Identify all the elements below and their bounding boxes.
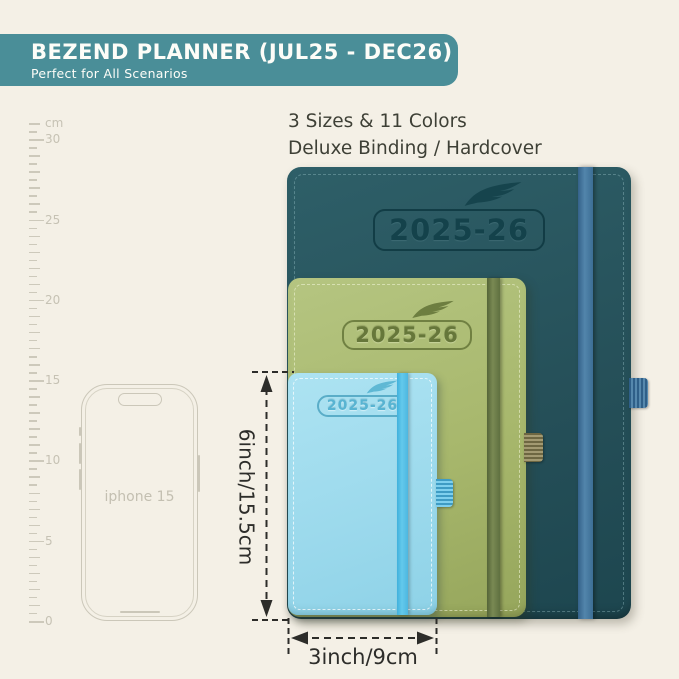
ruler-tick [29,501,37,503]
ruler-tick [29,316,40,318]
ruler-tick [29,228,37,230]
height-dimension-label: 6inch/15.5cm [235,410,259,585]
ruler-tick [29,525,40,527]
ruler-tick [29,468,37,470]
planner-small-pen-loop [436,479,453,507]
ruler-tick [29,493,40,495]
ruler-number-label: 5 [45,534,53,548]
ruler-tick [29,147,37,149]
iphone-mute-button [79,427,81,436]
ruler-tick [29,332,40,334]
ruler-tick [29,284,40,286]
iphone-power-button [198,455,200,492]
ruler-tick [29,621,44,623]
planner-medium-pen-loop [524,433,543,462]
header-banner: BEZEND PLANNER (JUL25 - DEC26) Perfect f… [0,34,458,86]
ruler-tick [29,340,37,342]
ruler-tick [29,131,37,133]
ruler-tick [29,276,37,278]
header-title: BEZEND PLANNER (JUL25 - DEC26) [31,40,458,64]
info-line-binding: Deluxe Binding / Hardcover [288,135,542,162]
ruler-tick [29,436,37,438]
product-info: 3 Sizes & 11 Colors Deluxe Binding / Har… [288,108,542,162]
dynamic-island [118,393,162,406]
ruler-tick [29,573,40,575]
ruler-tick [29,605,40,607]
header-subtitle: Perfect for All Scenarios [31,66,458,81]
year-label: 2025-26 [373,209,545,251]
ruler-tick [29,236,40,238]
planner-small: 2025-26 [288,373,437,615]
planner-small-elastic-band [397,373,408,615]
ruler-tick [29,155,40,157]
ruler-tick [29,220,44,222]
ruler-tick [29,179,37,181]
ruler-tick [29,396,40,398]
ruler-tick [29,549,37,551]
ruler-tick [29,581,37,583]
ruler-tick [29,484,37,486]
ruler-tick [29,476,40,478]
ruler-tick [29,123,40,125]
ruler-tick [29,541,44,543]
info-line-sizes: 3 Sizes & 11 Colors [288,108,542,135]
ruler-tick [29,517,37,519]
ruler-tick [29,252,40,254]
ruler-tick [29,244,37,246]
ruler-tick [29,565,37,567]
ruler-tick [29,308,37,310]
ruler-tick [29,171,40,173]
ruler-tick [29,613,37,615]
planner-medium-elastic-band [487,278,500,617]
year-label: 2025-26 [342,320,471,350]
feather-icon [366,380,398,394]
feather-icon [462,181,524,207]
ruler-tick [29,533,37,535]
ruler-tick [29,356,37,358]
ruler-tick [29,452,37,454]
planner-large-elastic-band [578,167,593,619]
iphone-volume-down-button [79,469,81,490]
ruler-tick [29,509,40,511]
iphone-label: iphone 15 [82,489,197,505]
feather-icon [410,300,456,319]
iphone-bottom-bar [120,611,160,614]
ruler-tick [29,163,37,165]
ruler-tick [29,300,44,302]
ruler-tick [29,404,37,406]
ruler-tick [29,187,40,189]
ruler-tick [29,460,44,462]
ruler-tick [29,348,40,350]
ruler-tick [29,420,37,422]
ruler-tick [29,260,37,262]
ruler-number-label: 30 [45,132,60,146]
planner-small-emboss: 2025-26 [288,380,437,417]
product-image: BEZEND PLANNER (JUL25 - DEC26) Perfect f… [0,0,679,679]
planner-large-pen-loop [629,378,648,408]
ruler-tick [29,388,37,390]
ruler-tick [29,557,40,559]
ruler-tick [29,195,37,197]
ruler-tick [29,597,37,599]
ruler-number-label: 25 [45,213,60,227]
ruler-number-label: 15 [45,373,60,387]
ruler-tick [29,412,40,414]
ruler-tick [29,139,44,141]
ruler-tick [29,292,37,294]
iphone-outline: iphone 15 [81,384,198,621]
ruler-tick [29,364,40,366]
iphone-volume-up-button [79,443,81,464]
ruler-tick [29,268,40,270]
ruler-tick [29,372,37,374]
ruler-tick [29,203,40,205]
ruler-tick [29,380,44,382]
ruler-tick [29,428,40,430]
width-dimension-label: 3inch/9cm [288,645,438,669]
ruler-number-label: 0 [45,614,53,628]
ruler-number-label: 10 [45,453,60,467]
ruler-number-label: 20 [45,293,60,307]
ruler-unit-label: cm [45,116,63,130]
ruler-tick [29,211,37,213]
ruler-tick [29,589,40,591]
ruler-tick [29,324,37,326]
year-label: 2025-26 [317,395,408,417]
ruler-tick [29,444,40,446]
